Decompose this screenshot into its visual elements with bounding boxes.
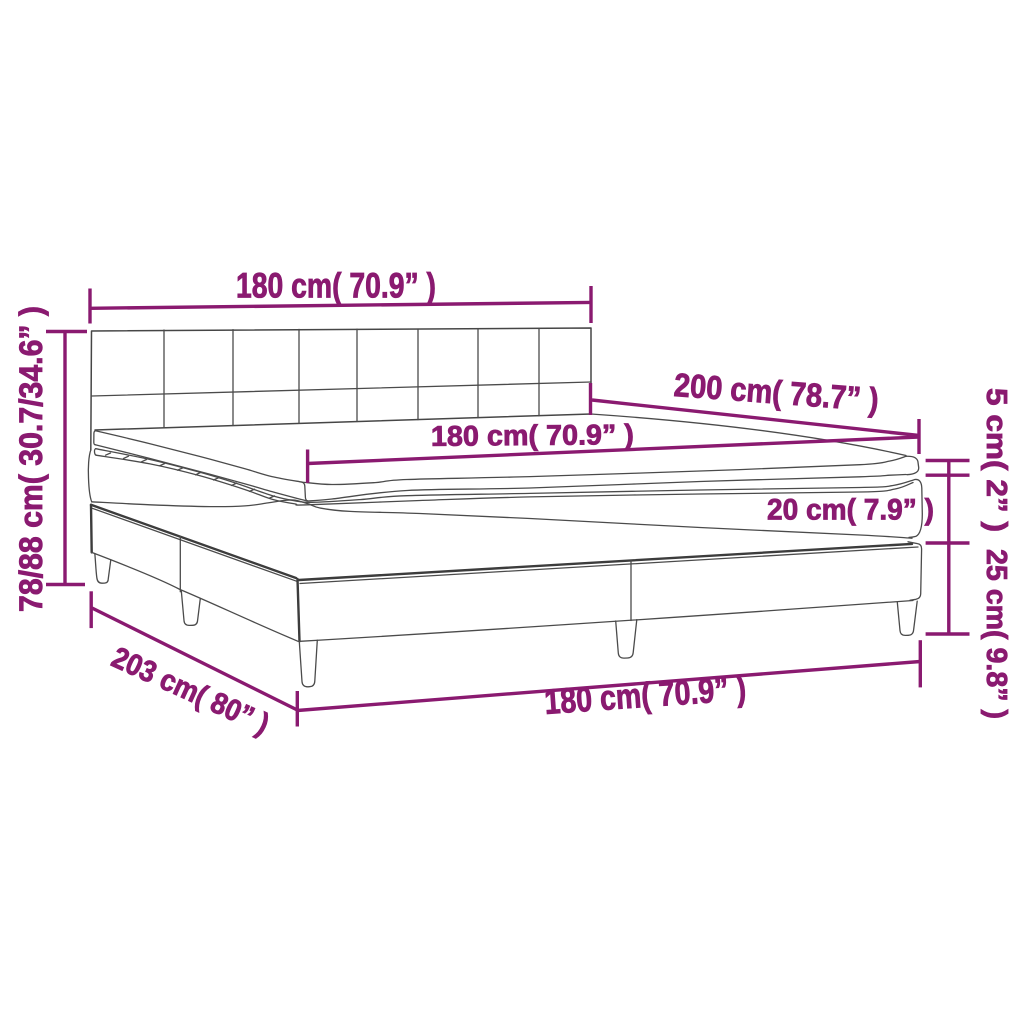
svg-text:5 cm( 2” ): 5 cm( 2” ) [980, 388, 1012, 532]
svg-text:78/88 cm( 30.7/34.6” ): 78/88 cm( 30.7/34.6” ) [13, 306, 49, 612]
svg-text:25 cm( 9.8” ): 25 cm( 9.8” ) [980, 549, 1012, 719]
svg-text:20 cm( 7.9” ): 20 cm( 7.9” ) [767, 493, 934, 526]
svg-text:180 cm( 70.9” ): 180 cm( 70.9” ) [236, 267, 436, 306]
svg-text:180 cm( 70.9” ): 180 cm( 70.9” ) [431, 419, 634, 453]
